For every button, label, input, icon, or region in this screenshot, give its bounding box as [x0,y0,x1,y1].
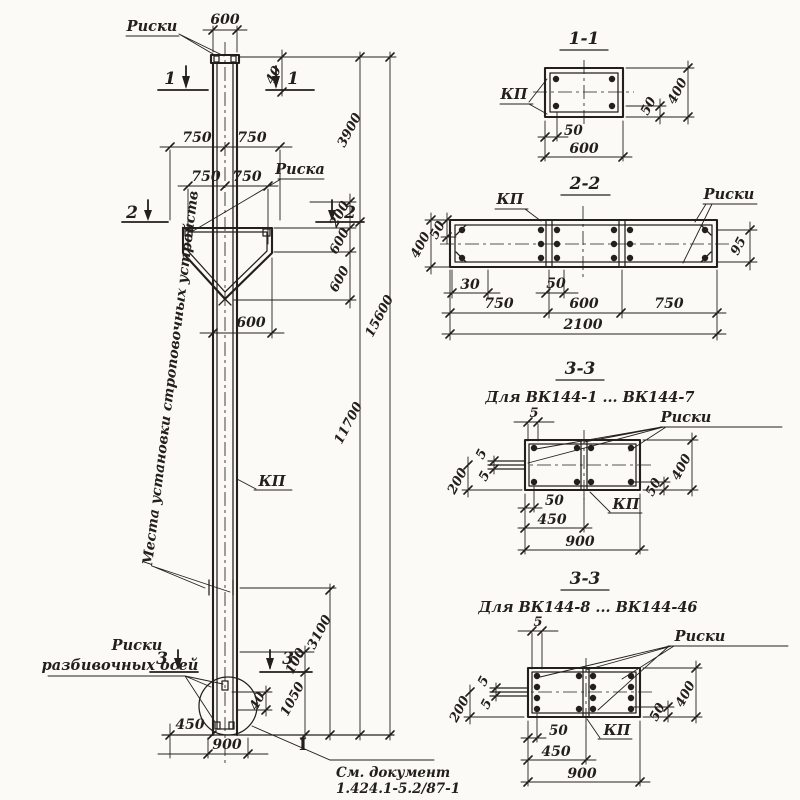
dim-lift-height: 3100 [305,613,335,652]
dim-top-part: 3900 [335,111,365,150]
doc-note-line1: См. документ [336,765,450,781]
head-risk-mark [214,56,219,62]
dim-shaft-part: 11700 [332,400,366,447]
drawing-canvas: 1 1 2 2 3 3 [0,0,800,800]
section-3-3b-subtitle: Для ВК144-8 ... ВК144-46 [477,599,697,616]
riski-label: Риски [703,186,755,203]
dim-gap-upper: 5 [475,674,492,689]
dim-edge: 30 [460,277,480,293]
dim-half: 450 [537,512,566,528]
dim-row1-left: 750 [182,130,211,146]
doc-note-leader [252,726,434,760]
dim-left-offset: 200 [444,466,470,498]
lifting-note-leader [152,566,230,592]
section-3-3a-view: 3-3 Для ВК144-1 ... ВК144-7 Риски КП 5 5… [444,359,782,554]
dim-center: 600 [569,296,598,312]
dim-side-cover: 50 [643,476,665,499]
dim-row2-left: 750 [191,169,220,185]
kp-label: КП [603,722,632,739]
dim-height: 400 [665,76,691,107]
dim-top-offset: 5 [529,406,538,421]
section-mark-label: 1 [164,69,176,89]
axes-note-leader [48,676,223,722]
corbel-outline [183,228,272,305]
riska-label: Риска [274,161,324,178]
riski-top-label: Риски [126,18,178,35]
kp-label: КП [258,473,287,490]
corner-hooks [456,225,711,262]
dim-foot-half: 450 [175,717,204,733]
dim-gap-upper: 5 [473,447,490,462]
dim-row2-right: 750 [232,169,261,185]
dim-half: 450 [541,744,570,760]
riski-leader [528,427,782,463]
head-risk-mark [231,56,236,62]
dim-row1-right: 750 [237,130,266,146]
dim-top-offset: 5 [533,615,542,630]
section-3-3a-title: 3-3 [565,359,596,379]
riski-label: Риски [674,628,726,645]
section-3-3b-dims: 5 5 5 200 50 400 50 450 900 [446,615,702,786]
dim-right-cover: 95 [728,235,750,258]
kp-label: КП [500,86,529,103]
column-outline [211,42,239,764]
dim-head-offset: 40 [263,64,285,87]
dim-top-width: 600 [210,12,239,28]
dim-cover: 50 [549,723,568,739]
dim-mid-cover: 50 [546,276,566,292]
drawing-sheet: 1 1 2 2 3 3 [0,0,800,800]
section-2-2-view: 2-2 КП Риски 400 50 95 30 50 [408,174,757,340]
rebar-dots [534,673,634,712]
elevation-dim-texts: 600 40 750 750 750 750 200 600 600 600 4… [175,12,397,753]
doc-note-line2: 1.424.1-5.2/87-1 [336,781,460,797]
dim-total-length: 15600 [363,293,397,340]
section-mark-label: 2 [125,203,138,223]
dim-height: 400 [669,452,695,483]
axes-note-line2: разбивочных осей [42,657,199,674]
dim-side-cover: 50 [638,95,660,118]
section-mark-label: 1 [287,69,299,89]
dim-foot-width: 900 [212,737,241,753]
dim-width: 900 [567,766,596,782]
section-1-1-dims: 50 600 50 400 [538,61,694,161]
dim-cover: 50 [545,493,564,509]
dim-left-offset: 200 [446,694,472,726]
dim-width: 900 [565,534,594,550]
dim-right: 750 [654,296,683,312]
dim-height: 400 [673,679,699,710]
kp-label: КП [496,191,525,208]
axes-note-line1: Риски [111,637,163,654]
dim-corbel-bottom: 600 [327,264,353,295]
riski-top-leader [126,34,224,56]
riski-label: Риски [660,409,712,426]
section-1-1-view: 1-1 КП 50 600 50 400 [500,29,694,161]
section-1-1-title: 1-1 [569,29,600,49]
dim-shaft-width: 600 [236,315,265,331]
section-3-3a-subtitle: Для ВК144-1 ... ВК144-7 [485,389,695,406]
section-3-3b-title: 3-3 [570,569,601,589]
dim-cover: 50 [564,123,583,139]
dim-embed-depth: 1050 [278,680,308,719]
lifting-note: Места установки строповочных устройств [139,190,202,568]
elevation-view: 1 1 2 2 3 3 [42,12,461,797]
dim-left: 750 [484,296,513,312]
section-3-3b-view: 3-3 Для ВК144-8 ... ВК144-46 Риски КП 5 [446,569,788,786]
dim-total: 2100 [563,317,603,333]
column-foot [199,580,257,735]
mark-symbol: I [299,735,307,755]
kp-label: КП [612,496,641,513]
dim-width: 600 [569,141,598,157]
section-2-2-title: 2-2 [569,174,601,194]
